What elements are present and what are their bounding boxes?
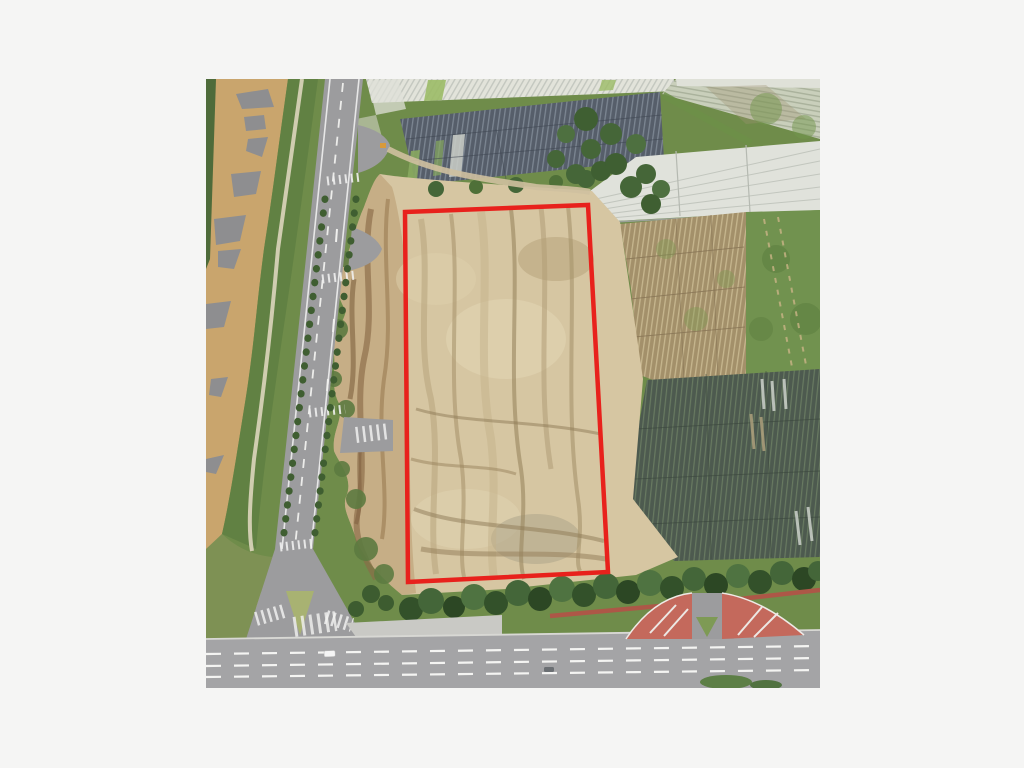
gray-car — [544, 667, 554, 672]
aerial-photo — [206, 79, 820, 688]
excavator — [380, 143, 386, 148]
grass-field-east — [746, 210, 820, 375]
white-car — [324, 650, 335, 657]
aerial-photo-canvas — [206, 79, 820, 688]
dark-mulch-field — [631, 369, 820, 561]
